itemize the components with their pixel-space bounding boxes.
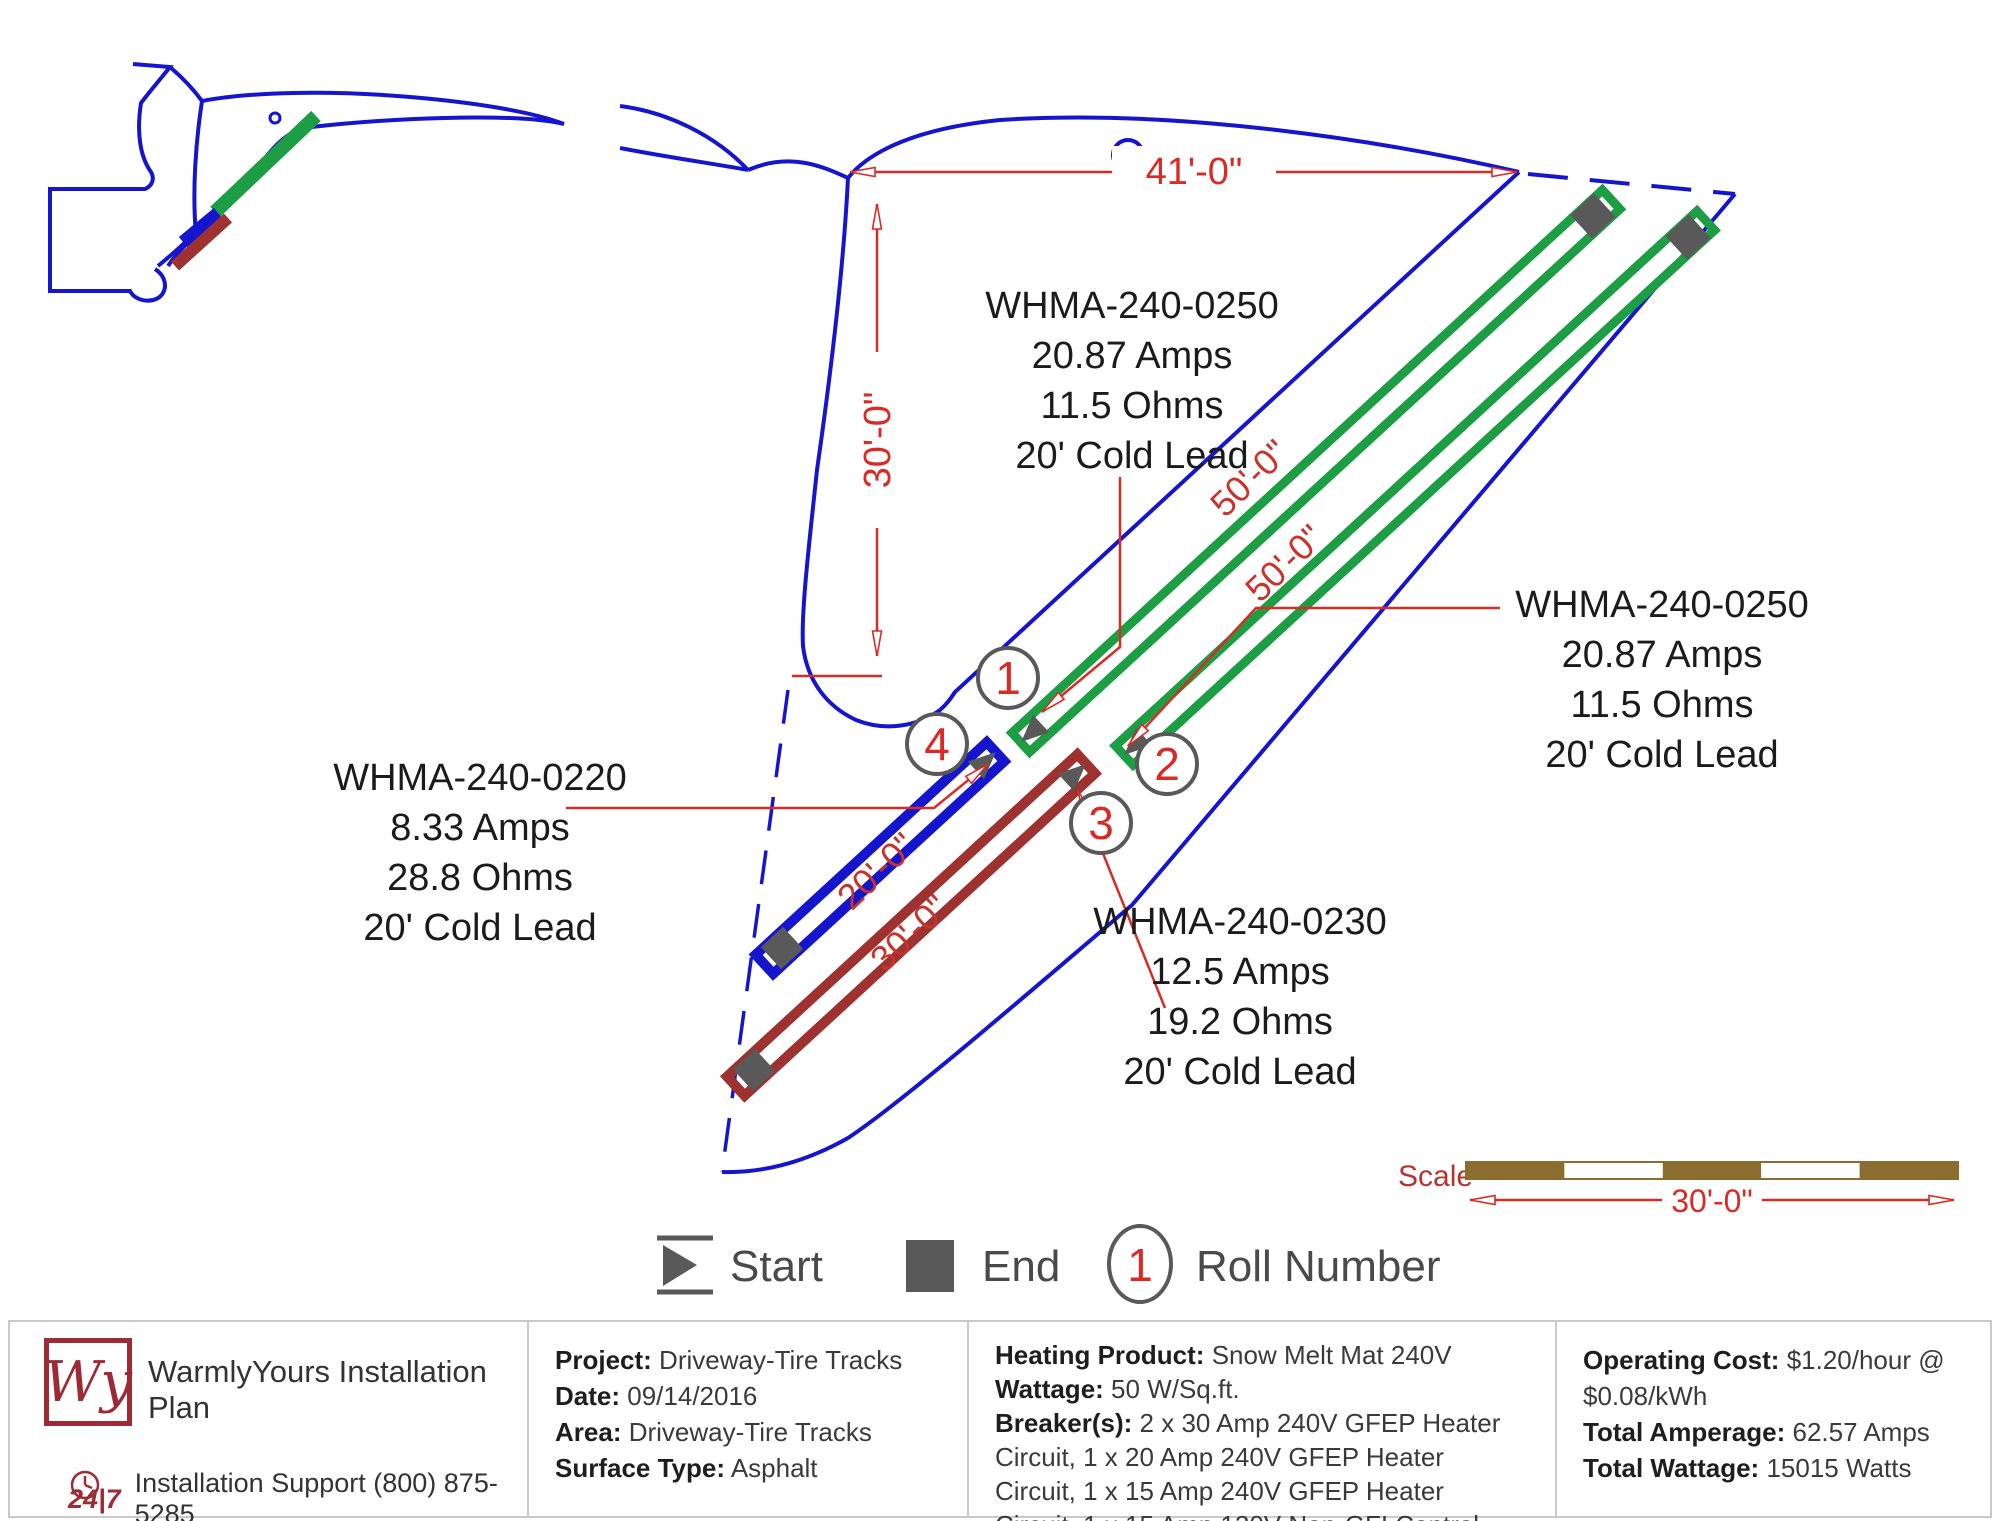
roll-4-ohms: 28.8 Ohms [280, 853, 680, 903]
dimension-top-width: 41'-0" [850, 146, 1517, 194]
label-block-roll-4: WHMA-240-0220 8.33 Amps 28.8 Ohms 20' Co… [280, 753, 680, 953]
scale-label: Scale [1398, 1160, 1473, 1193]
date-label: Date: [555, 1381, 620, 1411]
surface-type-label: Surface Type: [555, 1453, 725, 1483]
roll-3-lead: 20' Cold Lead [1040, 1047, 1440, 1097]
brand-title: WarmlyYours Installation Plan [148, 1354, 527, 1426]
breakers-label: Breaker(s): [995, 1408, 1132, 1438]
dimension-left-height-text: 30'-0" [857, 392, 899, 489]
installation-plan-page: 41'-0" 30'-0" 50'-0" 50'-0" 20'-0" 30'-0… [0, 0, 2000, 1521]
heating-product-label: Heating Product: [995, 1340, 1204, 1370]
roll-2-amps: 20.87 Amps [1462, 630, 1862, 680]
area-label: Area: [555, 1417, 621, 1447]
dimension-left-height: 30'-0" [792, 204, 900, 676]
label-block-roll-1: WHMA-240-0250 20.87 Amps 11.5 Ohms 20' C… [932, 281, 1332, 481]
project-label: Project: [555, 1345, 652, 1375]
roll-2-ohms: 11.5 Ohms [1462, 680, 1862, 730]
dimension-top-width-text: 41'-0" [1146, 151, 1243, 193]
roll-4-lead: 20' Cold Lead [280, 903, 680, 953]
roll-1-model: WHMA-240-0250 [932, 281, 1332, 331]
overview-street-lower-edge [158, 117, 564, 266]
roll-balloon-4: 4 [924, 718, 950, 770]
dashed-top-right-edge [1528, 174, 1735, 194]
overview-outline [50, 64, 170, 301]
roll-2-lead: 20' Cold Lead [1462, 730, 1862, 780]
roll-3-model: WHMA-240-0230 [1040, 897, 1440, 947]
roll-3-ohms: 19.2 Ohms [1040, 997, 1440, 1047]
scale-dimension-text: 30'-0" [1671, 1183, 1753, 1219]
legend-start-label: Start [730, 1242, 823, 1291]
area-value: Driveway-Tire Tracks [629, 1417, 872, 1447]
date-value: 09/14/2016 [627, 1381, 757, 1411]
footer-project-cell: Project: Driveway-Tire Tracks Date: 09/1… [529, 1322, 969, 1516]
roll-balloon-1: 1 [995, 652, 1021, 704]
start-icon [657, 1238, 713, 1292]
roll-4-model: WHMA-240-0220 [280, 753, 680, 803]
roll-4-amps: 8.33 Amps [280, 803, 680, 853]
warmlyyours-logo-icon: Wy [44, 1338, 132, 1426]
total-amperage-value: 62.57 Amps [1792, 1417, 1929, 1447]
roll-balloon-2: 2 [1154, 738, 1180, 790]
support-row: 24|7 Installation Support (800) 875-5285 [68, 1468, 527, 1521]
roll-1-amps: 20.87 Amps [932, 331, 1332, 381]
wattage-label: Wattage: [995, 1374, 1104, 1404]
overview-drain-circle [270, 113, 280, 123]
footer-info-bar: Wy WarmlyYours Installation Plan 24|7 In… [8, 1320, 1992, 1518]
legend-end-label: End [982, 1242, 1060, 1291]
end-icon [906, 1240, 954, 1292]
total-amperage-label: Total Amperage: [1583, 1417, 1785, 1447]
total-wattage-label: Total Wattage: [1583, 1453, 1759, 1483]
total-wattage-value: 15015 Watts [1766, 1453, 1911, 1483]
footer-brand-cell: Wy WarmlyYours Installation Plan 24|7 In… [10, 1322, 529, 1516]
overview-inset [50, 64, 564, 301]
roll-1-lead: 20' Cold Lead [932, 431, 1332, 481]
roll-balloon-3: 3 [1088, 797, 1114, 849]
wattage-value: 50 W/Sq.ft. [1111, 1374, 1240, 1404]
roll-3-amps: 12.5 Amps [1040, 947, 1440, 997]
roll-number-icon: 1 [1109, 1226, 1171, 1302]
overview-street-upper-edge [170, 67, 564, 124]
support-phone: Installation Support (800) 875-5285 [135, 1468, 527, 1521]
legend-roll-example: 1 [1127, 1239, 1153, 1291]
roll-2-model: WHMA-240-0250 [1462, 580, 1862, 630]
surface-type-value: Asphalt [731, 1453, 818, 1483]
scale-bar-segments [1466, 1162, 1958, 1179]
scale-bar: Scale 30'-0" [1398, 1160, 1958, 1220]
roll-1-ohms: 11.5 Ohms [932, 381, 1332, 431]
footer-totals-cell: Operating Cost: $1.20/hour @ $0.08/kWh T… [1557, 1322, 1990, 1516]
legend-roll-number-label: Roll Number [1196, 1242, 1441, 1291]
legend: Start End 1 Roll Number [657, 1226, 1441, 1302]
roll-number-balloons: 1 2 3 4 [907, 648, 1197, 853]
label-block-roll-2: WHMA-240-0250 20.87 Amps 11.5 Ohms 20' C… [1462, 580, 1862, 780]
footer-product-cell: Heating Product: Snow Melt Mat 240V Watt… [969, 1322, 1557, 1516]
operating-cost-label: Operating Cost: [1583, 1345, 1779, 1375]
logo-monogram: Wy [44, 1350, 132, 1415]
project-value: Driveway-Tire Tracks [659, 1345, 902, 1375]
label-block-roll-3: WHMA-240-0230 12.5 Amps 19.2 Ohms 20' Co… [1040, 897, 1440, 1097]
heating-product-value: Snow Melt Mat 240V [1212, 1340, 1452, 1370]
overview-green-mat [215, 116, 316, 212]
